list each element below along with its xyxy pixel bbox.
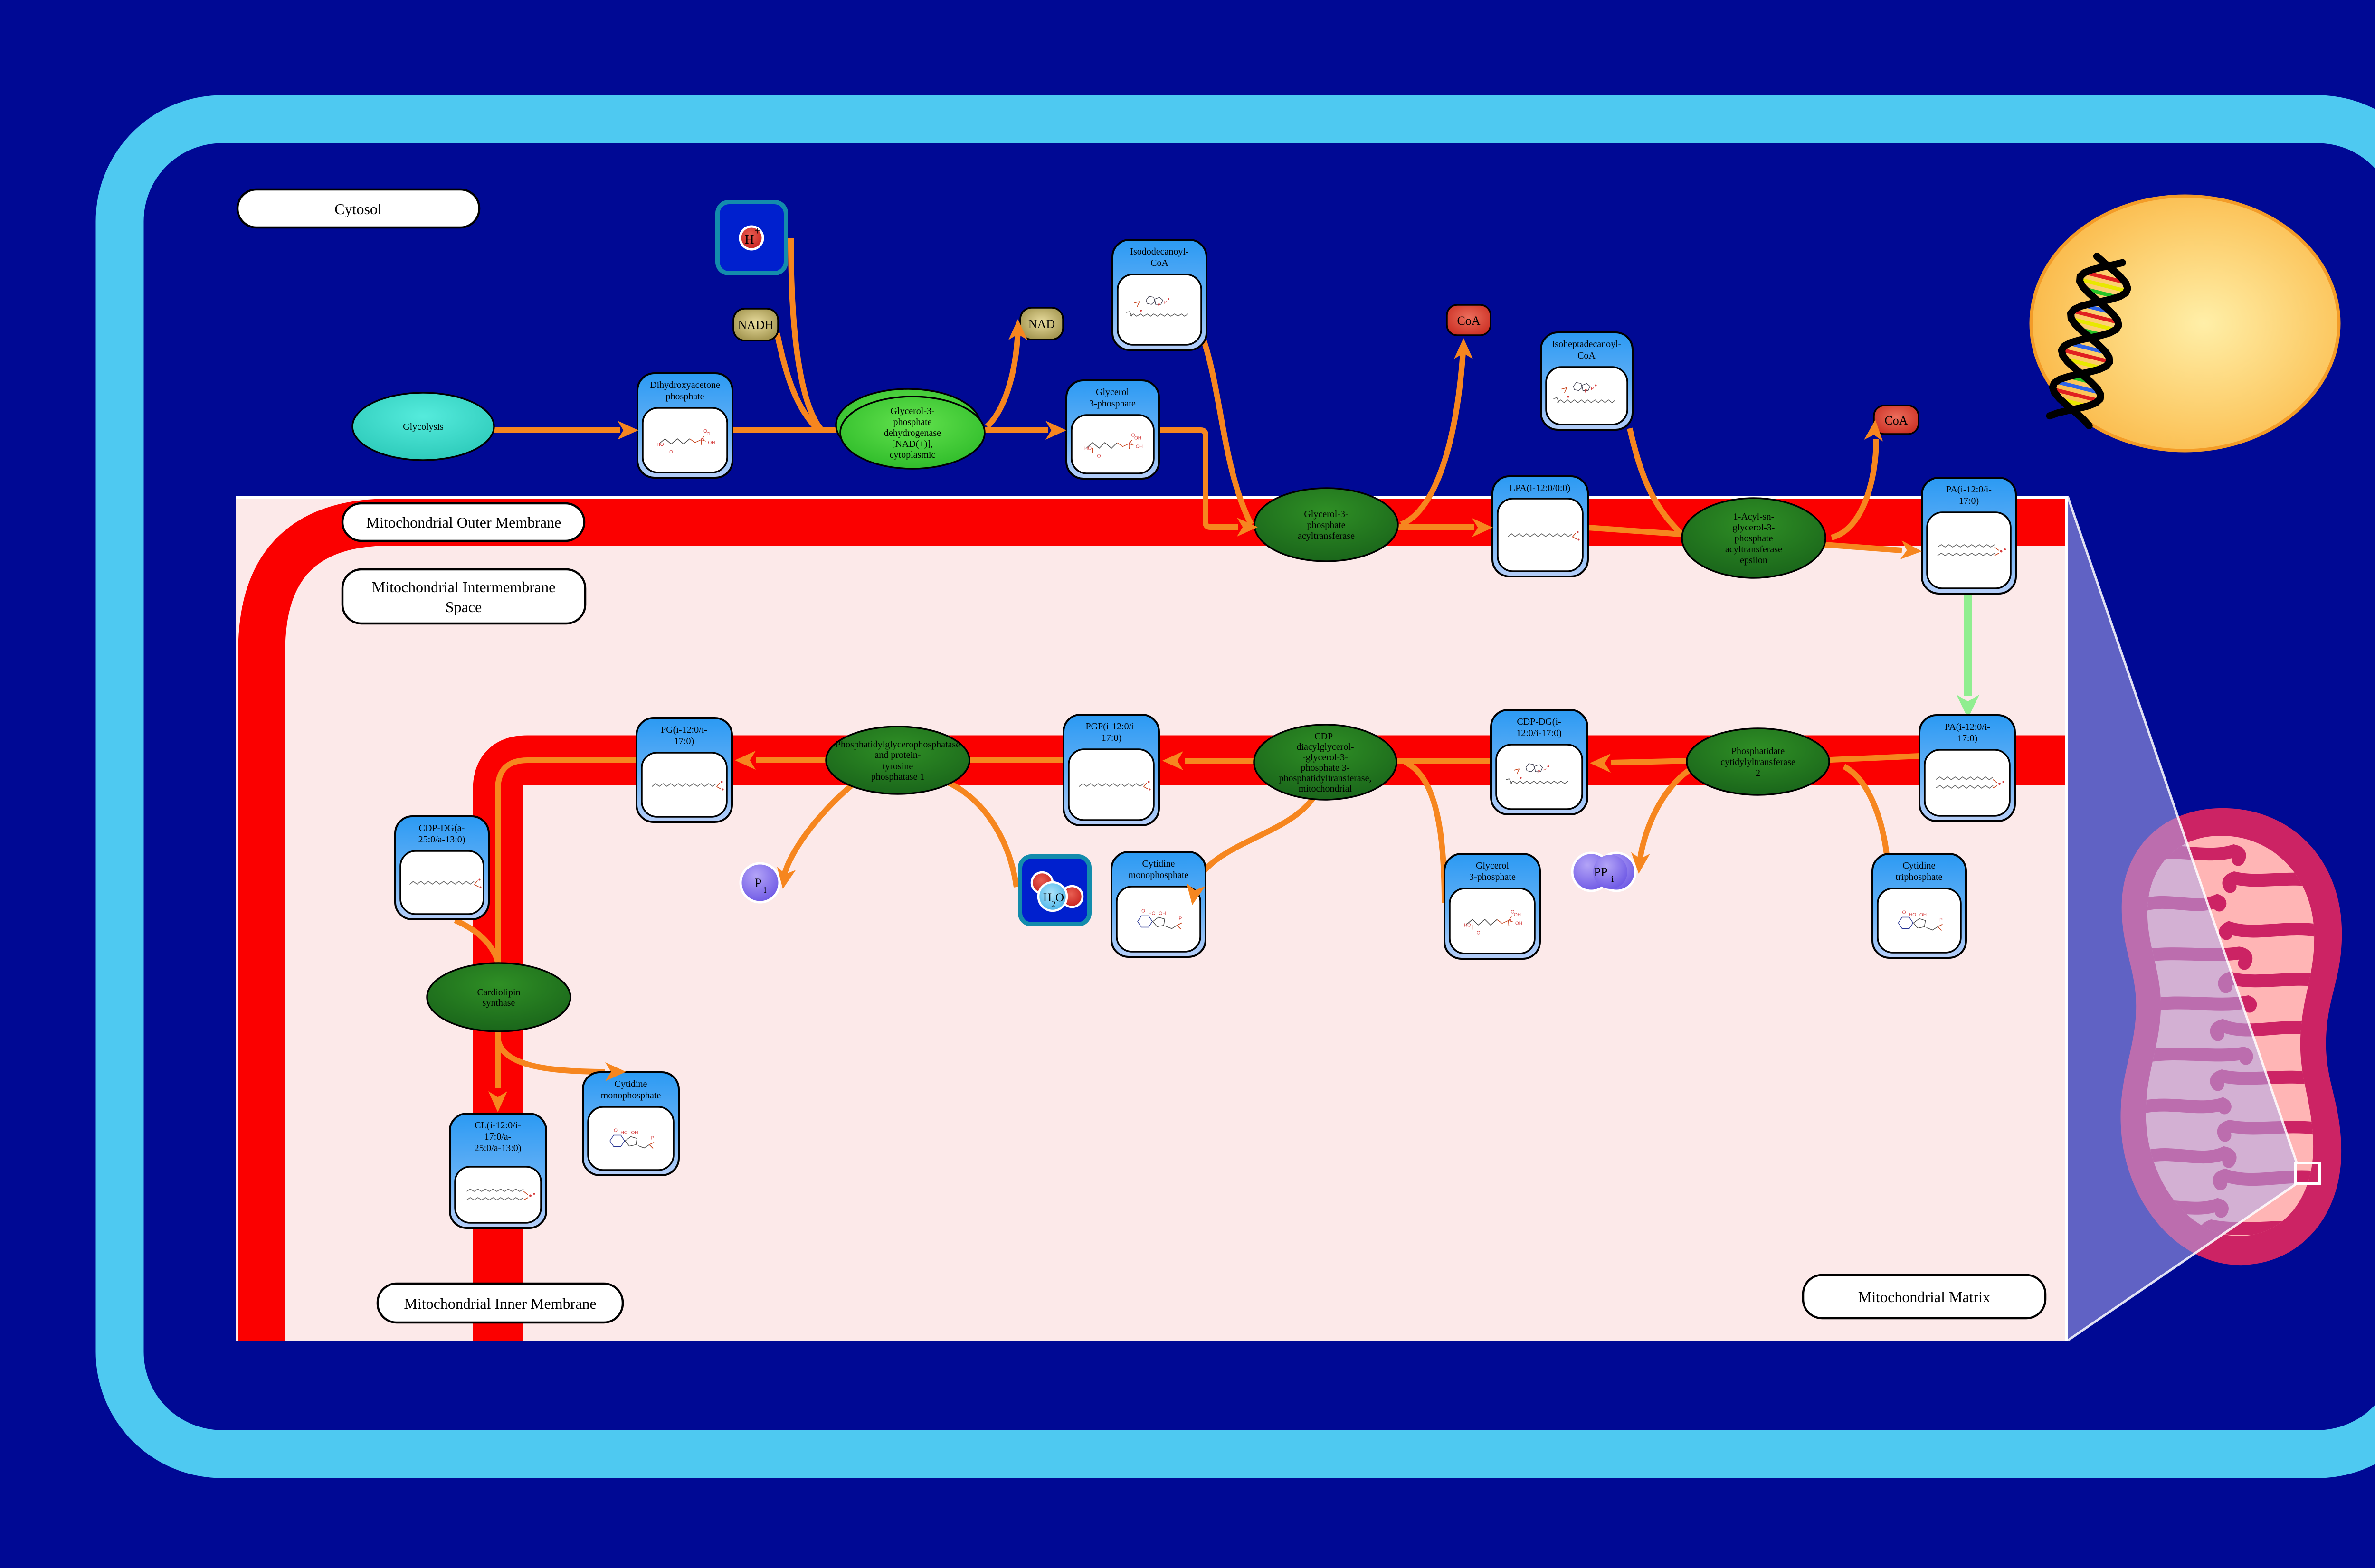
svg-text:phosphate 3-: phosphate 3- — [1301, 763, 1350, 773]
svg-text:tyrosine: tyrosine — [883, 761, 913, 772]
svg-text:CDP-DG(i-: CDP-DG(i- — [1517, 717, 1561, 727]
svg-text:Glycerol: Glycerol — [1096, 387, 1129, 397]
svg-text:phosphate: phosphate — [893, 417, 931, 427]
svg-text:Cytosol: Cytosol — [334, 200, 382, 217]
svg-text:OH: OH — [1919, 913, 1927, 918]
svg-text:P: P — [755, 876, 761, 890]
svg-text:P: P — [651, 1136, 655, 1141]
svg-text:phosphatidyltransferase,: phosphatidyltransferase, — [1279, 773, 1372, 784]
svg-text:mitochondrial: mitochondrial — [1299, 784, 1352, 794]
svg-text:-glycerol-3-: -glycerol-3- — [1302, 752, 1348, 763]
svg-text:OH: OH — [708, 440, 715, 445]
svg-text:P: P — [1543, 767, 1547, 773]
svg-text:O: O — [1131, 433, 1135, 438]
svg-text:Space: Space — [446, 598, 482, 615]
svg-text:P: P — [1537, 770, 1540, 775]
svg-text:Dihydroxyacetone: Dihydroxyacetone — [650, 380, 720, 390]
svg-text:NAD: NAD — [1028, 317, 1055, 331]
svg-text:triphosphate: triphosphate — [1896, 872, 1943, 882]
svg-text:O: O — [614, 1128, 617, 1133]
svg-text:O: O — [1902, 910, 1906, 916]
svg-text:[NAD(+)],: [NAD(+)], — [892, 439, 933, 449]
svg-text:CoA: CoA — [1884, 414, 1908, 427]
svg-text:PA(i-12:0/i-: PA(i-12:0/i- — [1946, 484, 1992, 495]
svg-text:acyltransferase: acyltransferase — [1298, 531, 1355, 541]
svg-text:O: O — [703, 429, 707, 434]
svg-text:H: H — [1043, 891, 1052, 904]
svg-text:2: 2 — [1756, 768, 1760, 778]
svg-text:glycerol-3-: glycerol-3- — [1733, 522, 1775, 533]
svg-text:17:0): 17:0) — [674, 736, 694, 746]
svg-text:Mitochondrial Inner Membrane: Mitochondrial Inner Membrane — [404, 1295, 596, 1312]
svg-text:Cardiolipin: Cardiolipin — [477, 987, 520, 998]
svg-text:phosphate: phosphate — [665, 391, 704, 402]
svg-text:P: P — [1591, 387, 1594, 392]
svg-text:P: P — [1585, 389, 1588, 394]
svg-text:Glycerol-3-: Glycerol-3- — [890, 406, 934, 416]
svg-text:Cytidine: Cytidine — [1903, 860, 1936, 871]
svg-text:H: H — [745, 232, 754, 246]
svg-text:17:0): 17:0) — [1957, 733, 1977, 744]
svg-text:cytoplasmic: cytoplasmic — [890, 450, 936, 460]
svg-text:PA(i-12:0/i-: PA(i-12:0/i- — [1945, 722, 1990, 732]
svg-text:phosphatase 1: phosphatase 1 — [871, 772, 925, 782]
svg-text:17:0): 17:0) — [1959, 496, 1979, 506]
svg-text:O: O — [1511, 910, 1515, 915]
svg-text:P: P — [701, 438, 704, 443]
svg-text:OH: OH — [1514, 913, 1521, 918]
svg-text:HO: HO — [1149, 911, 1156, 916]
svg-text:phosphate: phosphate — [1307, 520, 1345, 530]
svg-text:i: i — [764, 885, 767, 895]
svg-text:NADH: NADH — [738, 318, 773, 332]
svg-text:OH: OH — [1159, 911, 1166, 916]
svg-text:PGP(i-12:0/i-: PGP(i-12:0/i- — [1086, 721, 1138, 732]
svg-text:P: P — [1508, 919, 1511, 924]
svg-text:P: P — [1129, 442, 1132, 447]
svg-text:PG(i-12:0/i-: PG(i-12:0/i- — [661, 725, 707, 735]
svg-text:3-phosphate: 3-phosphate — [1469, 872, 1516, 882]
svg-text:cytidylyltransferase: cytidylyltransferase — [1720, 757, 1795, 767]
svg-text:3-phosphate: 3-phosphate — [1089, 398, 1136, 409]
svg-text:OH: OH — [1134, 436, 1141, 441]
svg-text:CoA: CoA — [1150, 258, 1168, 268]
svg-text:HO: HO — [1084, 446, 1092, 452]
svg-text:Mitochondrial Intermembrane: Mitochondrial Intermembrane — [372, 578, 556, 595]
svg-text:CDP-DG(a-: CDP-DG(a- — [419, 823, 465, 833]
svg-text:OH: OH — [631, 1131, 638, 1136]
svg-text:Cytidine: Cytidine — [615, 1079, 647, 1089]
svg-text:synthase: synthase — [483, 998, 515, 1008]
svg-text:LPA(i-12:0/0:0): LPA(i-12:0/0:0) — [1510, 483, 1570, 493]
svg-text:+: + — [754, 225, 761, 237]
svg-text:Glycerol-3-: Glycerol-3- — [1304, 509, 1348, 520]
svg-text:Isoheptadecanoyl-: Isoheptadecanoyl- — [1552, 339, 1622, 349]
svg-text:OH: OH — [1136, 444, 1143, 450]
svg-text:P: P — [1158, 302, 1161, 308]
svg-text:OH: OH — [1515, 921, 1522, 926]
svg-text:HO: HO — [1464, 923, 1471, 928]
svg-text:P: P — [1164, 300, 1167, 305]
svg-text:O: O — [1097, 454, 1101, 459]
svg-text:Mitochondrial Outer Membrane: Mitochondrial Outer Membrane — [366, 514, 561, 531]
svg-text:dehydrogenase: dehydrogenase — [884, 428, 941, 438]
svg-text:HO: HO — [1909, 913, 1916, 918]
svg-text:Mitochondrial Matrix: Mitochondrial Matrix — [1858, 1288, 1990, 1305]
svg-text:OH: OH — [707, 432, 714, 437]
svg-text:P: P — [1179, 916, 1182, 922]
svg-text:acyltransferase: acyltransferase — [1725, 544, 1782, 555]
svg-text:i: i — [1611, 874, 1614, 884]
svg-text:CL(i-12:0/i-: CL(i-12:0/i- — [475, 1120, 521, 1131]
svg-text:diacylglycerol-: diacylglycerol- — [1296, 742, 1354, 752]
svg-text:HO: HO — [657, 442, 664, 447]
svg-text:O: O — [1141, 909, 1145, 914]
svg-text:17:0): 17:0) — [1102, 733, 1121, 743]
svg-text:Phosphatidylglycerophosphatase: Phosphatidylglycerophosphatase — [836, 739, 960, 750]
svg-text:monophosphate: monophosphate — [1129, 870, 1189, 880]
svg-text:Glycerol: Glycerol — [1476, 860, 1509, 871]
svg-text:25:0/a-13:0): 25:0/a-13:0) — [475, 1143, 522, 1153]
svg-text:CDP-: CDP- — [1314, 731, 1336, 742]
svg-text:CoA: CoA — [1457, 314, 1480, 328]
svg-text:P: P — [1939, 918, 1943, 923]
svg-text:and protein-: and protein- — [874, 750, 921, 760]
svg-text:Glycolysis: Glycolysis — [403, 422, 444, 432]
svg-text:PP: PP — [1594, 865, 1608, 879]
svg-text:1-Acyl-sn-: 1-Acyl-sn- — [1733, 511, 1775, 522]
svg-text:epsilon: epsilon — [1740, 555, 1767, 566]
svg-text:17:0/a-: 17:0/a- — [484, 1132, 512, 1142]
svg-text:HO: HO — [621, 1131, 628, 1136]
svg-text:phosphate: phosphate — [1734, 533, 1773, 544]
svg-text:O: O — [669, 450, 673, 455]
svg-text:12:0/i-17:0): 12:0/i-17:0) — [1516, 728, 1562, 738]
svg-text:O: O — [1055, 891, 1064, 904]
svg-text:Cytidine: Cytidine — [1142, 859, 1175, 869]
svg-text:25:0/a-13:0): 25:0/a-13:0) — [418, 834, 465, 845]
svg-text:Isododecanoyl-: Isododecanoyl- — [1130, 246, 1188, 257]
svg-text:Phosphatidate: Phosphatidate — [1731, 746, 1785, 756]
svg-text:O: O — [1477, 931, 1481, 936]
svg-text:CoA: CoA — [1577, 350, 1596, 361]
svg-text:monophosphate: monophosphate — [601, 1090, 661, 1101]
